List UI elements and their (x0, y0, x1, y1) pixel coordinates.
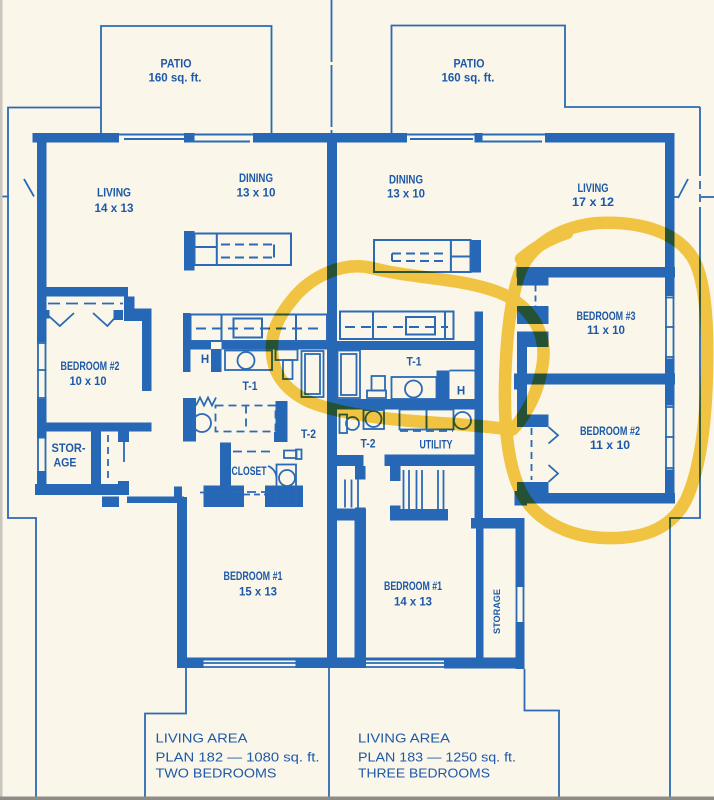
svg-text:LIVING AREA: LIVING AREA (156, 731, 248, 746)
svg-text:BEDROOM #2: BEDROOM #2 (61, 361, 120, 373)
svg-text:DINING: DINING (239, 173, 273, 185)
svg-text:THREE BEDROOMS: THREE BEDROOMS (358, 766, 490, 781)
svg-text:T-1: T-1 (407, 357, 423, 369)
svg-text:T-1: T-1 (243, 381, 259, 393)
svg-text:160 sq. ft.: 160 sq. ft. (149, 73, 202, 85)
svg-text:UTILITY: UTILITY (420, 440, 453, 452)
svg-text:14 x 13: 14 x 13 (95, 203, 134, 215)
svg-text:13 x 10: 13 x 10 (387, 189, 425, 201)
svg-text:17 x 12: 17 x 12 (572, 197, 614, 209)
svg-text:H: H (201, 354, 209, 366)
svg-text:13 x 10: 13 x 10 (237, 188, 276, 200)
svg-text:BEDROOM #1: BEDROOM #1 (384, 581, 442, 593)
svg-text:15 x 13: 15 x 13 (239, 587, 277, 599)
svg-text:TWO BEDROOMS: TWO BEDROOMS (156, 766, 277, 781)
svg-text:PLAN 182 — 1080 sq. ft.: PLAN 182 — 1080 sq. ft. (156, 750, 320, 765)
svg-text:T-2: T-2 (361, 439, 376, 451)
svg-text:11 x 10: 11 x 10 (590, 440, 630, 452)
svg-text:PLAN 183 — 1250 sq. ft.: PLAN 183 — 1250 sq. ft. (358, 750, 516, 765)
svg-text:BEDROOM #3: BEDROOM #3 (577, 311, 636, 323)
svg-text:10 x 10: 10 x 10 (70, 376, 107, 388)
svg-text:H: H (457, 386, 465, 398)
svg-text:DINING: DINING (389, 175, 423, 187)
svg-text:160 sq. ft.: 160 sq. ft. (442, 73, 495, 85)
svg-text:11 x 10: 11 x 10 (587, 325, 625, 337)
svg-text:AGE: AGE (54, 458, 77, 470)
svg-text:BEDROOM #1: BEDROOM #1 (224, 571, 283, 583)
svg-text:LIVING: LIVING (97, 188, 131, 200)
svg-text:BEDROOM #2: BEDROOM #2 (580, 426, 640, 438)
svg-text:CLOSET: CLOSET (232, 466, 267, 478)
svg-text:STORAGE: STORAGE (492, 589, 502, 634)
svg-text:14 x 13: 14 x 13 (394, 597, 432, 609)
svg-text:PATIO: PATIO (454, 59, 485, 71)
svg-text:LIVING AREA: LIVING AREA (358, 731, 450, 746)
svg-text:STOR-: STOR- (52, 443, 86, 455)
svg-text:PATIO: PATIO (161, 59, 192, 71)
svg-text:LIVING: LIVING (578, 183, 609, 195)
svg-text:T-2: T-2 (301, 429, 316, 441)
